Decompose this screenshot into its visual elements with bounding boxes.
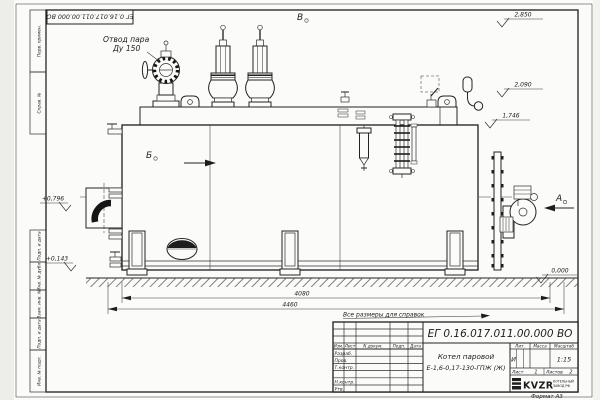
lit-value: И [511, 356, 516, 364]
sheet-value: 1 [534, 370, 537, 376]
support-leg-rear [445, 231, 465, 275]
product-designation: Е-1,6-0,17-130-ГПЖ (Ж) [426, 364, 505, 372]
margin-label: Инв. № дубл. [37, 261, 43, 290]
org-name-line1: КОТЕЛЬНЫЙ [553, 379, 575, 384]
elevation-0000: 0,000 [551, 268, 568, 275]
row-utv: Утв. [335, 387, 344, 393]
lifting-lug-left [181, 96, 199, 107]
scale-label: Масштаб [554, 343, 574, 348]
boiler-drawing: Перв. примен. Справ. № Подп. и дата Инв.… [0, 0, 600, 400]
siphon-handle [463, 77, 472, 92]
product-name: Котел паровой [438, 352, 495, 361]
col-podp: Подп. [393, 343, 406, 348]
col-izm: Изм. [334, 343, 344, 348]
org-name-line2: ЗАВОД РФ [553, 384, 570, 388]
logo-text: KVZR [523, 381, 554, 392]
view-label-b: Б [146, 151, 152, 161]
sheets-label: Листов [545, 369, 563, 375]
format-label: Формат А3 [531, 394, 563, 400]
top-stamp-text: ЕГ 0.16.017.011.00.000 ВО [47, 13, 134, 20]
lifting-lug-right [438, 96, 456, 107]
support-leg-middle [280, 231, 300, 275]
margin-label: Взам. инв. № [37, 289, 43, 319]
elevation-2090: 2,090 [514, 82, 531, 89]
scale-value: 1:15 [557, 356, 572, 364]
sheet-label: Лист [511, 369, 524, 375]
mass-label: Масса [533, 343, 547, 348]
dim-4080: 4080 [294, 291, 309, 298]
margin-label: Перв. примен. [37, 25, 43, 57]
title-block: Изм. Лист N докум. Подп. Дата Разраб. Пр… [333, 322, 578, 393]
callout-line1: Отвод пара [103, 35, 150, 44]
scan-edge-left [0, 0, 14, 400]
elevation-2850: 2,850 [514, 12, 531, 19]
margin-label: Справ. № [37, 92, 43, 113]
elevation-0143: +0,143 [46, 256, 68, 263]
dim-4460: 4460 [282, 302, 297, 309]
ground [86, 278, 578, 287]
elevation-0796: +0,796 [42, 196, 64, 203]
col-data: Дата [409, 343, 421, 348]
doc-number: ЕГ 0.16.017.011.00.000 ВО [428, 328, 573, 340]
drawing-sheet: Перв. примен. Справ. № Подп. и дата Инв.… [0, 0, 600, 400]
manhole [167, 239, 197, 260]
margin-label: Подп. и дата [37, 231, 43, 261]
view-label-v: В [297, 13, 303, 23]
margin-label: Инв. № подл. [37, 356, 43, 386]
sheets-value: 2 [569, 370, 572, 376]
view-label-a: А [555, 194, 562, 204]
support-leg-front [127, 231, 147, 275]
margin-label: Подп. и дата [37, 319, 43, 349]
row-razrab: Разраб. [335, 351, 353, 357]
elevation-1746: 1,746 [502, 113, 519, 120]
handwheel [142, 62, 147, 79]
col-list: Лист [344, 343, 356, 348]
callout-line2: Ду 150 [112, 44, 141, 53]
row-prov: Пров. [335, 358, 348, 364]
col-ndoc: N докум. [363, 343, 382, 348]
row-nkontr: Н.контр. [335, 380, 355, 386]
lit-label: Лит. [514, 343, 525, 348]
scan-edge-right [593, 0, 600, 400]
row-tkontr: Т.контр. [335, 365, 355, 371]
